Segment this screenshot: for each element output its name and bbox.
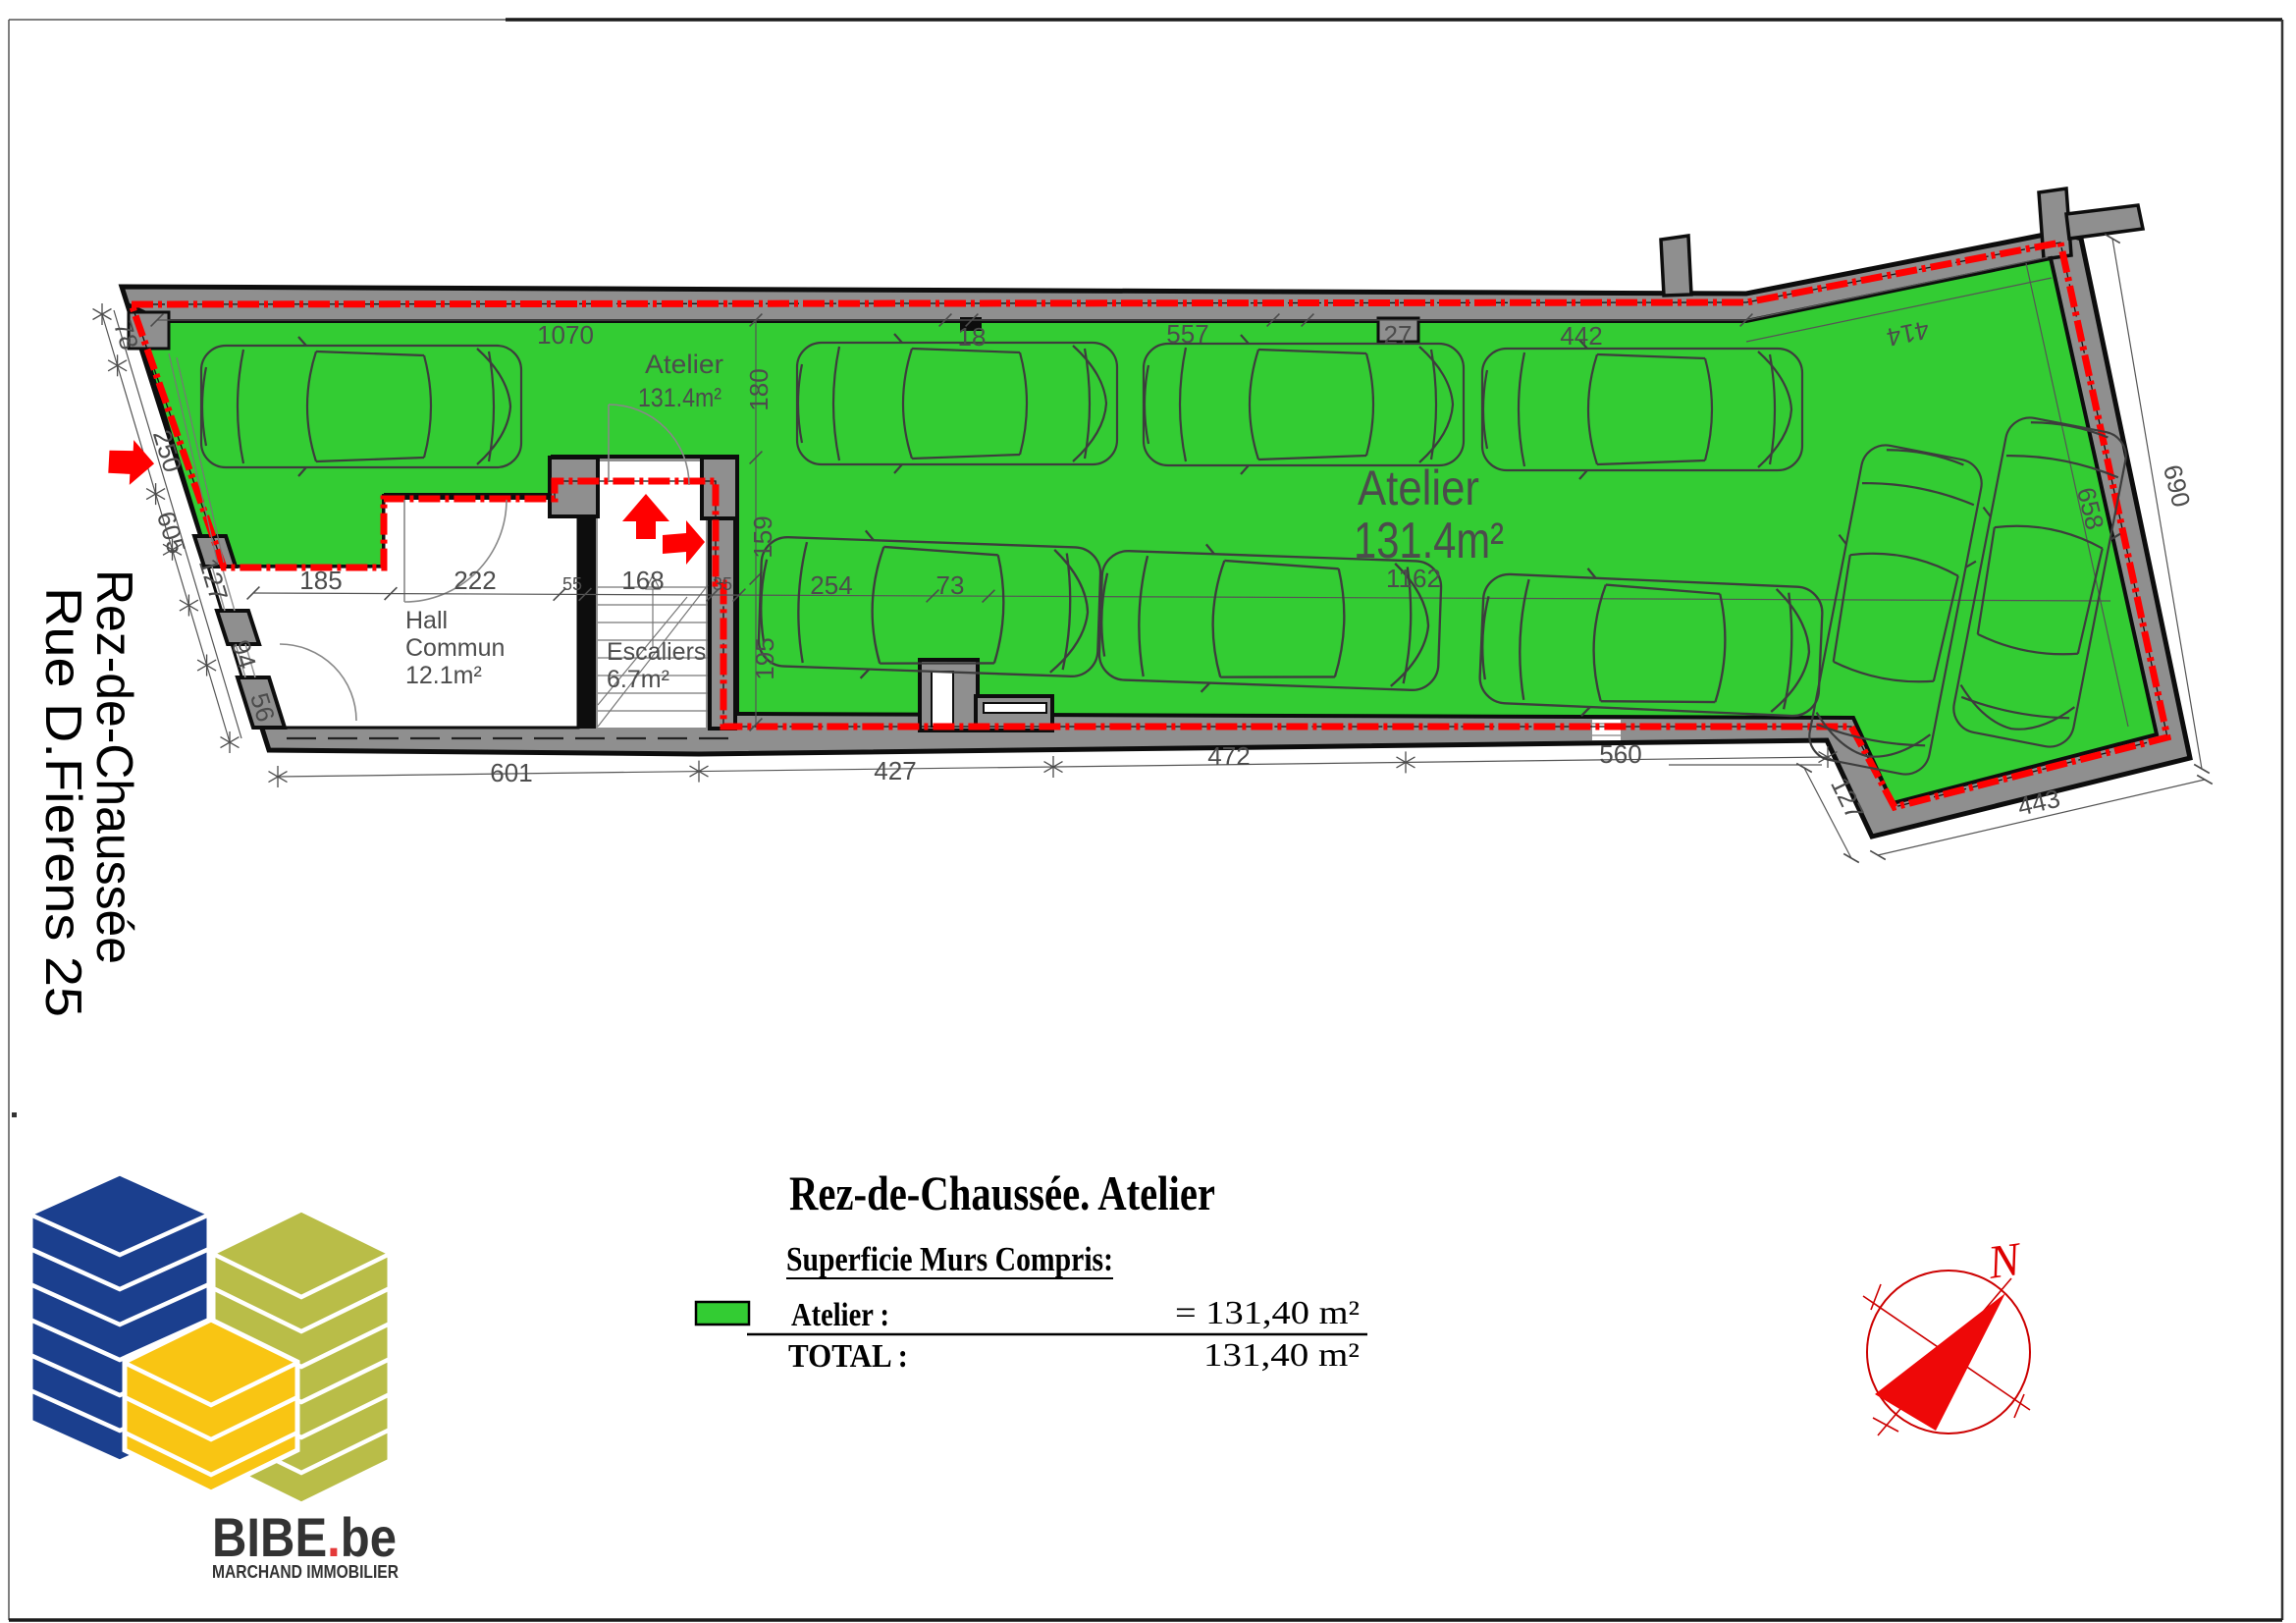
- svg-text:185: 185: [299, 566, 342, 595]
- svg-text:131,40 m²: 131,40 m²: [1203, 1337, 1360, 1374]
- svg-text:560: 560: [1599, 739, 1641, 769]
- svg-text:55: 55: [562, 574, 582, 594]
- svg-text:601: 601: [490, 758, 532, 787]
- svg-text:= 131,40 m²: = 131,40 m²: [1175, 1295, 1360, 1331]
- svg-text:442: 442: [1560, 321, 1602, 351]
- svg-text:Rez-de-Chaussée: Rez-de-Chaussée: [85, 569, 142, 964]
- svg-text:6.7m²: 6.7m²: [607, 666, 669, 693]
- svg-text:222: 222: [454, 566, 496, 595]
- svg-text:27: 27: [1384, 320, 1413, 350]
- svg-text:TOTAL :: TOTAL :: [788, 1338, 908, 1375]
- svg-text:131.4m²: 131.4m²: [1354, 513, 1504, 569]
- svg-text:1070: 1070: [537, 320, 594, 350]
- svg-text:35: 35: [713, 574, 732, 594]
- svg-text:557: 557: [1166, 319, 1208, 349]
- svg-text:472: 472: [1207, 741, 1250, 771]
- svg-text:MARCHAND IMMOBILIER: MARCHAND IMMOBILIER: [212, 1562, 399, 1582]
- svg-text:180: 180: [744, 368, 774, 410]
- svg-text:131.4m²: 131.4m²: [638, 383, 721, 412]
- svg-text:Superficie Murs Compris:: Superficie Murs Compris:: [786, 1240, 1113, 1278]
- svg-text:Rez-de-Chaussée. Atelier: Rez-de-Chaussée. Atelier: [789, 1165, 1215, 1220]
- svg-text:Atelier: Atelier: [645, 350, 723, 379]
- svg-text:427: 427: [874, 756, 916, 785]
- svg-text:Atelier: Atelier: [1358, 460, 1479, 515]
- svg-text:12.1m²: 12.1m²: [405, 662, 482, 689]
- svg-text:73: 73: [936, 570, 965, 600]
- svg-text:Hall: Hall: [405, 607, 448, 634]
- svg-text:Atelier :: Atelier :: [791, 1297, 889, 1333]
- svg-text:Rue D.Fierens 25: Rue D.Fierens 25: [34, 587, 91, 1017]
- svg-text:159: 159: [748, 515, 777, 558]
- svg-text:168: 168: [621, 566, 664, 595]
- svg-text:Escaliers: Escaliers: [607, 638, 706, 666]
- svg-text:18: 18: [958, 322, 987, 352]
- svg-text:254: 254: [810, 570, 852, 600]
- svg-text:195: 195: [750, 637, 779, 679]
- svg-text:BIBE.be: BIBE.be: [212, 1506, 397, 1568]
- svg-text:Commun: Commun: [405, 634, 505, 662]
